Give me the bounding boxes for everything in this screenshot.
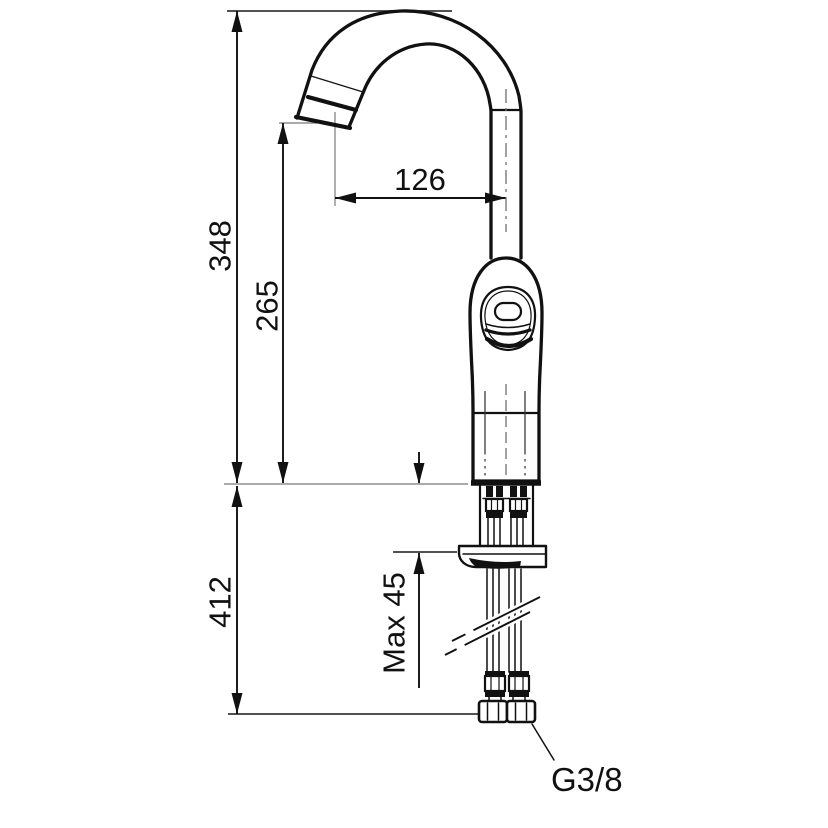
dim-label-max45: Max 45 <box>377 572 412 674</box>
spout-inner-contour <box>349 44 491 258</box>
aerator-joint-thin <box>311 76 363 92</box>
arrowhead-right <box>485 193 506 204</box>
arrowhead-up <box>232 11 243 32</box>
faucet-dimension-drawing: 348 265 412 126 Max 45 <box>0 0 828 828</box>
spout <box>296 11 521 258</box>
fitting-cap <box>496 486 503 497</box>
dimension-total-height: 348 <box>203 11 243 483</box>
arrowhead-down <box>232 462 243 483</box>
arrowhead-up <box>232 486 243 507</box>
thread-label: G3/8 <box>551 761 623 798</box>
hex-nut-left <box>479 701 507 722</box>
fitting-cap <box>510 486 517 497</box>
dim-label-126: 126 <box>394 162 446 197</box>
technical-drawing-canvas: 348 265 412 126 Max 45 <box>0 0 828 828</box>
connection-nuts <box>479 701 535 722</box>
fitting-cap <box>520 486 527 497</box>
mounting-flange <box>459 546 546 569</box>
hose-connector-right <box>510 499 527 511</box>
under-counter-fittings <box>480 486 533 547</box>
connector-band-right <box>510 511 527 518</box>
dimension-max-thickness: Max 45 <box>377 452 425 688</box>
collar-band <box>509 691 529 697</box>
break-slash-1 <box>452 597 540 641</box>
hose-connector-left <box>486 499 503 511</box>
hose-upper-lines <box>488 518 523 547</box>
hose-crimp-collars <box>485 671 529 702</box>
dim-label-348: 348 <box>203 220 238 272</box>
collar-body-right <box>509 676 529 691</box>
dimension-outlet-height: 265 <box>250 123 289 483</box>
connector-band-left <box>486 511 503 518</box>
dimension-spout-reach: 126 <box>335 162 506 204</box>
flexible-hoses <box>445 569 540 672</box>
arrowhead-down <box>278 462 289 483</box>
dim-label-412: 412 <box>203 576 238 628</box>
thread-callout: G3/8 <box>532 724 623 798</box>
leader-line <box>532 724 554 760</box>
arrowhead-left <box>335 193 356 204</box>
arrowhead-down <box>414 463 425 484</box>
arrowhead-down <box>232 693 243 714</box>
reference-lines <box>224 11 478 714</box>
dim-label-265: 265 <box>250 280 285 332</box>
aerator-joint-thick <box>308 97 356 110</box>
collar-band <box>485 691 505 697</box>
fitting-cap <box>486 486 493 497</box>
collar-body-left <box>485 676 505 691</box>
mixer-body <box>470 258 542 483</box>
hex-nut-right <box>507 701 535 722</box>
arrowhead-up <box>278 123 289 144</box>
dimension-hose-length: 412 <box>203 486 243 714</box>
